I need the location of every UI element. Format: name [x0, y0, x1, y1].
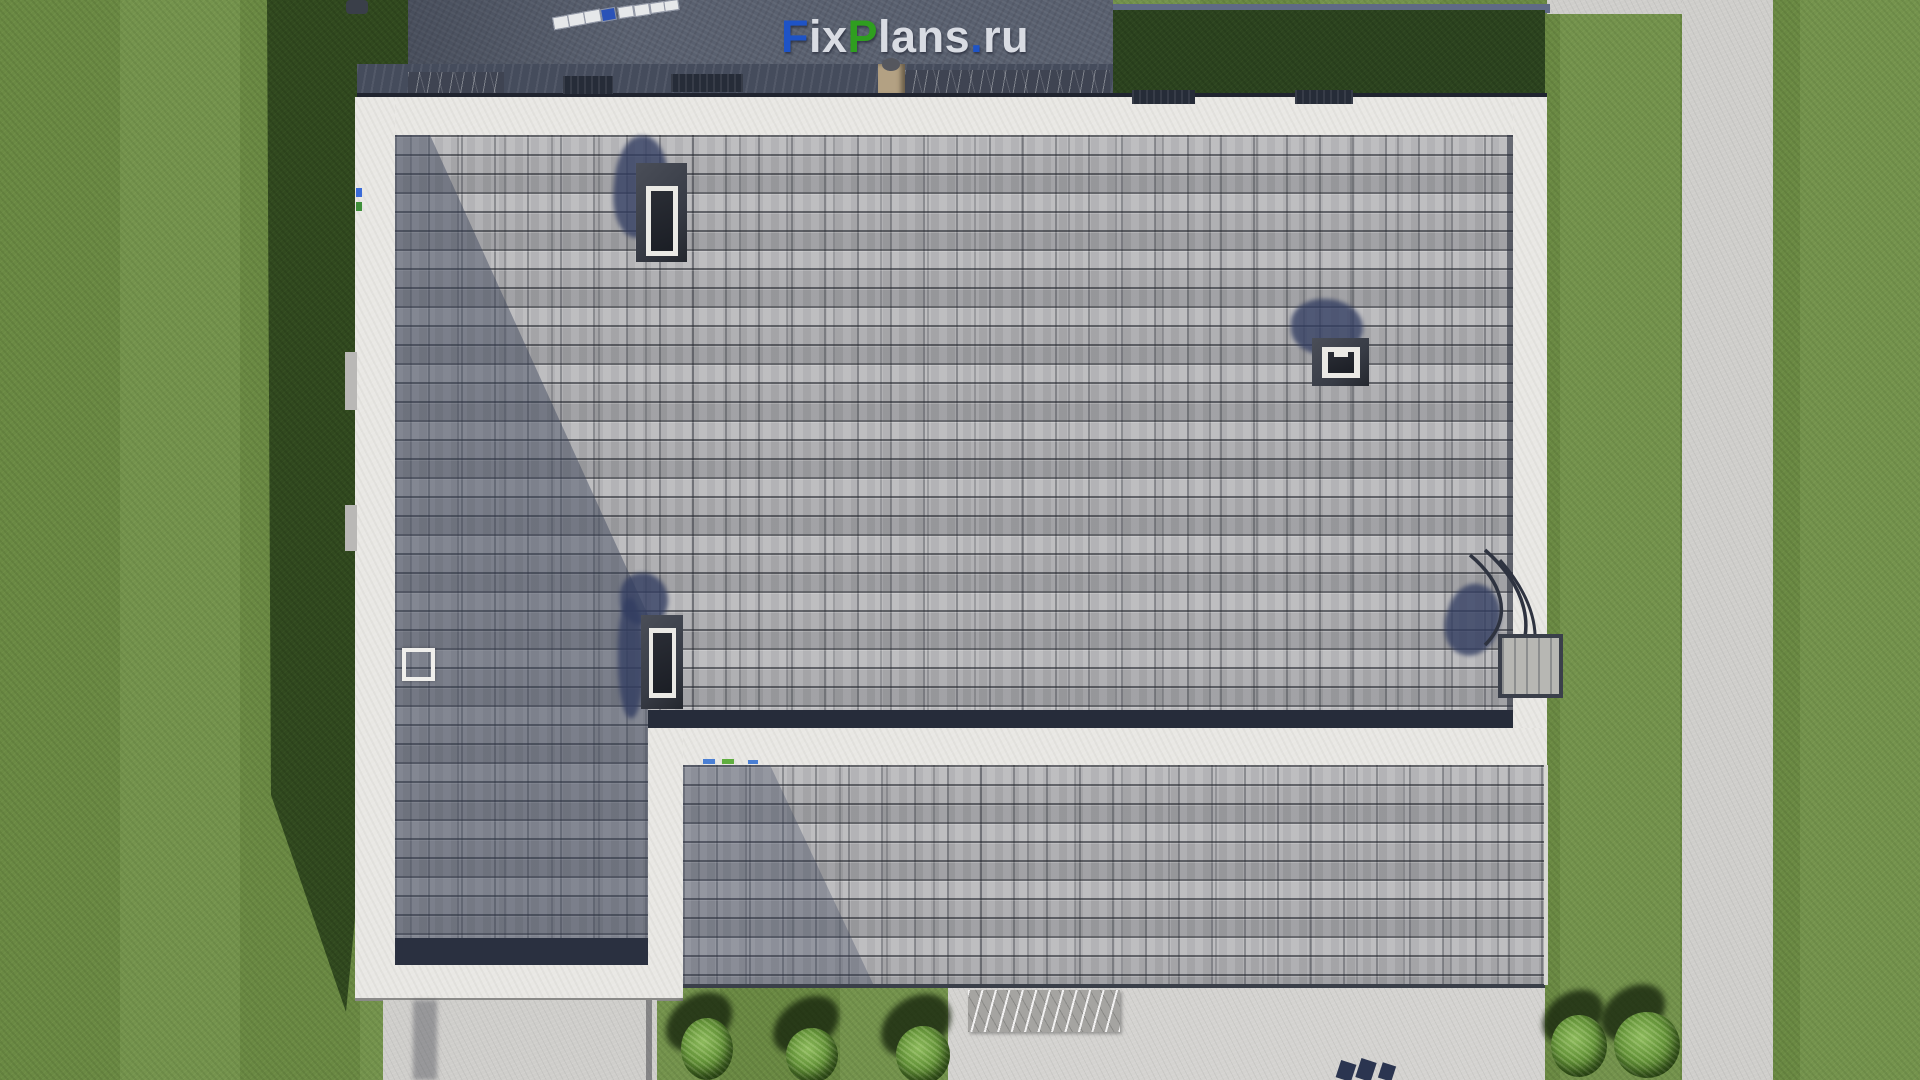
edge-dash-blue — [356, 188, 362, 197]
marble-slab — [968, 990, 1120, 1032]
edge-dash-green — [356, 202, 362, 211]
roof-access-platform — [1498, 634, 1563, 698]
logo-part-lans: lans — [878, 11, 970, 62]
wall-bump-2 — [345, 505, 357, 551]
bush-4 — [1551, 1015, 1607, 1077]
roof-wing-bottom-shadow — [395, 938, 648, 965]
eave-middle-vertical — [648, 728, 683, 968]
aerial-roof-render: FixPlans.ru — [0, 0, 1920, 1080]
logo-part-p: P — [848, 11, 879, 62]
roof-vent-square — [402, 648, 435, 681]
bush-1 — [681, 1018, 733, 1080]
artifact-dash-2 — [722, 759, 734, 764]
wall-bump-1 — [345, 352, 357, 410]
bush-2 — [786, 1028, 838, 1080]
eave-top — [355, 97, 1547, 135]
eave-left — [355, 97, 395, 1001]
roof-vent-2 — [671, 74, 743, 92]
logo-part-ru: ru — [983, 11, 1029, 62]
watermark-logo: FixPlans.ru — [781, 14, 1029, 59]
deck-object-8 — [663, 0, 679, 12]
eave-bottom-left — [355, 963, 683, 1001]
bush-3 — [896, 1026, 950, 1080]
deck-object-5 — [617, 5, 635, 19]
path-right — [1682, 0, 1773, 1080]
roof-vent-1 — [563, 76, 613, 94]
logo-part-f: F — [781, 11, 809, 62]
walkway-joint — [646, 1000, 652, 1080]
roof-vent-3 — [1132, 90, 1195, 104]
skylight-3-glass — [653, 633, 672, 693]
eave-lower-top — [648, 728, 1547, 765]
logo-part-ix: ix — [809, 11, 848, 62]
bush-5 — [1614, 1012, 1680, 1078]
skylight-2-vent-tab — [1334, 349, 1348, 357]
logo-part-dot: . — [970, 11, 983, 62]
skylight-1-glass — [651, 191, 673, 251]
roof-vent-4 — [1295, 90, 1353, 104]
walkway-shadow-line — [413, 1000, 437, 1080]
small-object-topleft — [346, 0, 368, 14]
artifact-dash-3 — [748, 760, 758, 764]
artifact-dash-1 — [703, 759, 715, 764]
deck-object-6 — [633, 3, 651, 17]
deck-object-4 — [600, 7, 617, 22]
shadow-patch-topright — [1113, 10, 1545, 95]
roof-lower-right-edge — [1544, 765, 1548, 985]
roof-step-shadow — [648, 710, 1513, 728]
